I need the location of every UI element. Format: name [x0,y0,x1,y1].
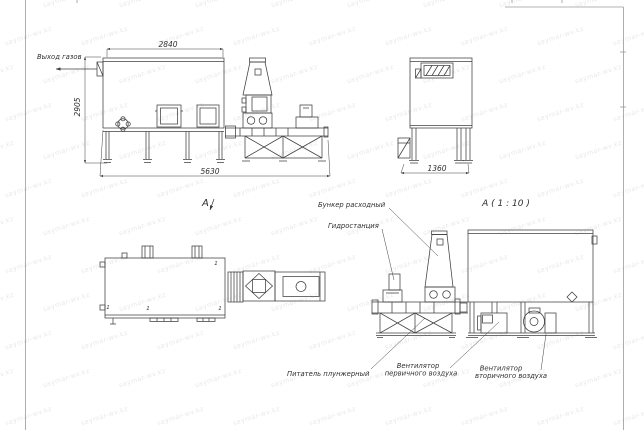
hydraulic-station [383,274,402,302]
plan-view-label: А [201,198,209,209]
side-box-end [398,138,410,158]
position-mark: 1 [218,306,222,312]
dimension-2840 [107,49,223,57]
inspection-panels [155,105,219,127]
dim-1360: 1360 [427,164,446,173]
feeder-truss-detail [376,313,456,338]
detail-view-title: А ( 1 : 10 ) [481,199,530,209]
hopper-label: Бункер расходный [318,201,386,209]
plunger-feeder-label: Питатель плунжерный [287,370,370,378]
technical-drawing: 2840 2905 5630 Выход газов [0,0,644,430]
secondary-fan-label-line2: вторичного воздуха [475,372,547,380]
drawing-canvas: saymar-wv.kzsaymar-wv.kzsaymar-wv.kzsaym… [0,0,644,430]
hydraulic-station-label: Гидростанция [328,222,379,230]
support-frame-detail [466,302,597,338]
primary-fan-label-line2: первичного воздуха [385,370,458,378]
position-mark: 1 [214,261,218,267]
position-mark: 1 [146,306,150,312]
side-view: 2840 2905 5630 Выход газов [37,40,330,176]
support-legs-end [409,126,473,164]
detail-view: А ( 1 : 10 ) [287,199,597,380]
feeder-plan [275,270,325,304]
gas-outlet-opening [416,63,454,78]
end-view: 1360 [398,56,473,173]
dim-2905: 2905 [73,97,82,116]
gas-outlet-label: Выход газов [37,53,82,61]
plunger-feeder-side [225,105,328,138]
secondary-air-fan [524,308,557,333]
plunger-feeder-detail [372,299,468,314]
hopper-plan [243,271,275,301]
feed-hopper-detail [425,231,455,302]
plan-view: А [100,198,325,324]
leader-lines [371,208,546,370]
feed-hopper-side [242,58,272,128]
furnace-body-plan [100,246,225,324]
sheet-frame [26,0,627,430]
support-frame-left [103,132,225,163]
dim-2840: 2840 [158,40,177,49]
furnace-body-end [410,56,472,128]
position-mark: 1 [106,305,110,311]
dim-5630: 5630 [200,167,219,176]
feeder-flange-plan [228,270,243,304]
valve-handwheel-icon [116,117,131,132]
dimension-2905 [85,57,107,163]
furnace-body-detail [468,228,597,302]
feeder-support-truss [242,136,326,161]
